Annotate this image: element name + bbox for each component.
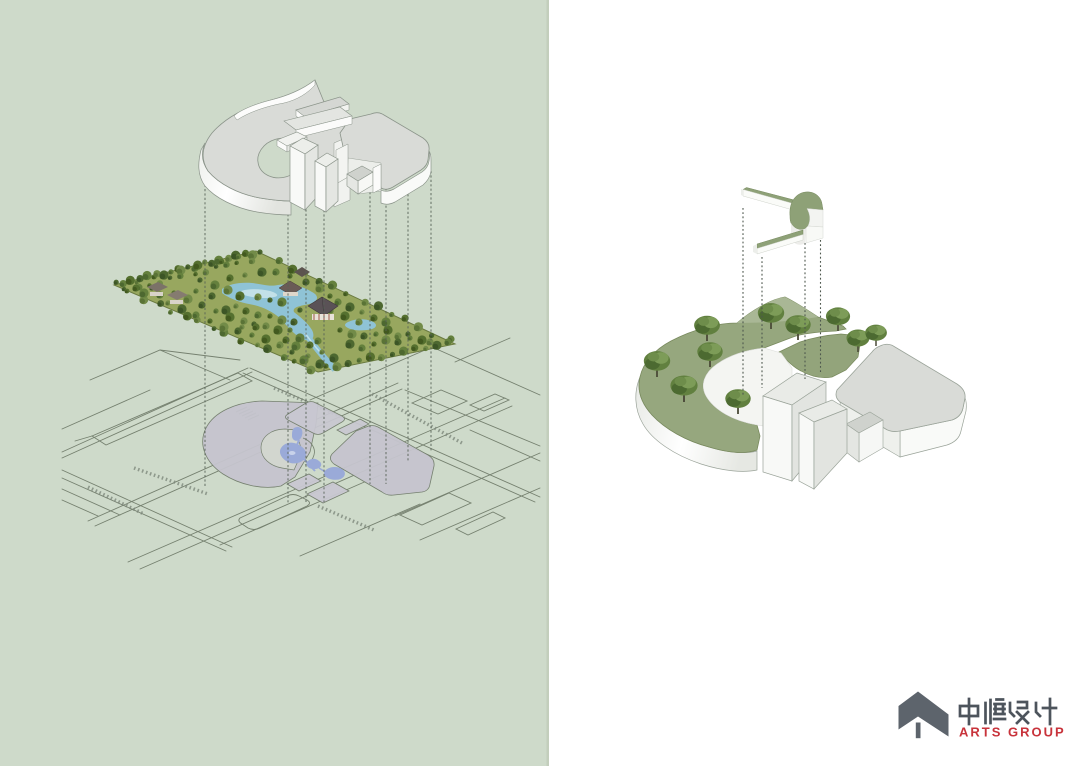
svg-text:ARTS GROUP: ARTS GROUP — [959, 725, 1066, 740]
